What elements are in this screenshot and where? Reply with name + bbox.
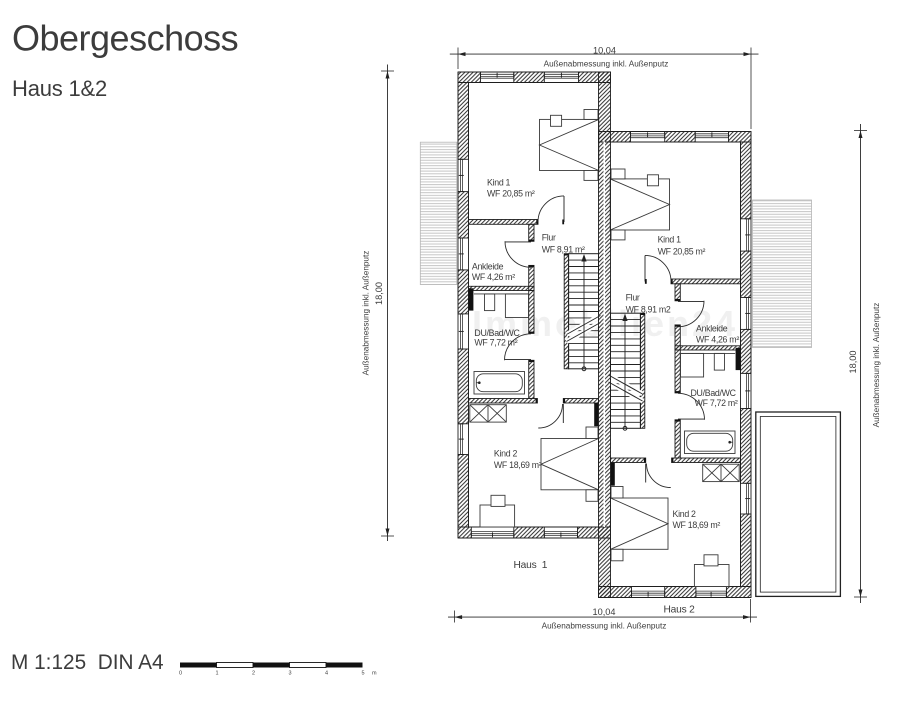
svg-text:Kind 1: Kind 1 (658, 235, 682, 245)
svg-text:Haus 1: Haus 1 (514, 560, 548, 571)
svg-text:WF 7,72 m²: WF 7,72 m² (474, 338, 517, 348)
svg-text:Flur: Flur (542, 233, 556, 243)
svg-text:Kind 2: Kind 2 (673, 509, 697, 519)
svg-text:WF 8,91 m2: WF 8,91 m2 (626, 305, 671, 315)
svg-text:Kind 2: Kind 2 (494, 449, 518, 459)
svg-text:WF 20,85 m²: WF 20,85 m² (487, 189, 535, 199)
svg-text:Ankleide: Ankleide (472, 262, 504, 272)
svg-text:5: 5 (362, 671, 365, 677)
svg-text:WF 8,91 m²: WF 8,91 m² (542, 245, 585, 255)
svg-text:3: 3 (289, 671, 292, 677)
svg-text:Außenabmessung inkl. Außenputz: Außenabmessung inkl. Außenputz (542, 622, 667, 631)
svg-text:18,00: 18,00 (374, 282, 384, 305)
svg-text:DU/Bad/WC: DU/Bad/WC (691, 388, 737, 398)
svg-text:WF 4,26 m²: WF 4,26 m² (696, 335, 739, 345)
svg-text:Flur: Flur (626, 293, 640, 303)
svg-text:Kind 1: Kind 1 (487, 178, 511, 188)
svg-text:1: 1 (216, 671, 219, 677)
svg-text:Außenabmessung inkl. Außenputz: Außenabmessung inkl. Außenputz (362, 251, 371, 376)
svg-text:WF 20,85 m²: WF 20,85 m² (658, 247, 706, 257)
svg-text:WF 18,69 m²: WF 18,69 m² (673, 520, 721, 530)
svg-text:Ankleide: Ankleide (696, 324, 728, 334)
svg-text:Außenabmessung inkl. Außenputz: Außenabmessung inkl. Außenputz (544, 60, 669, 69)
svg-text:18,00: 18,00 (848, 351, 858, 374)
svg-text:WF 7,72 m²: WF 7,72 m² (695, 398, 738, 408)
svg-text:m: m (372, 671, 377, 677)
svg-text:DU/Bad/WC: DU/Bad/WC (474, 328, 520, 338)
svg-text:WF 18,69 m²: WF 18,69 m² (494, 460, 542, 470)
svg-text:10,04: 10,04 (593, 45, 616, 55)
svg-text:M 1:125 DIN A4: M 1:125 DIN A4 (11, 651, 164, 674)
svg-text:Außenabmessung inkl. Außenputz: Außenabmessung inkl. Außenputz (872, 303, 881, 428)
svg-text:4: 4 (325, 671, 328, 677)
svg-text:Haus 1&2: Haus 1&2 (12, 76, 107, 101)
svg-text:10,04: 10,04 (593, 607, 616, 617)
svg-text:WF 4,26 m²: WF 4,26 m² (472, 272, 515, 282)
svg-text:2: 2 (252, 671, 255, 677)
svg-text:Haus 2: Haus 2 (664, 605, 696, 616)
svg-text:Obergeschoss: Obergeschoss (12, 18, 238, 59)
svg-text:0: 0 (179, 671, 182, 677)
